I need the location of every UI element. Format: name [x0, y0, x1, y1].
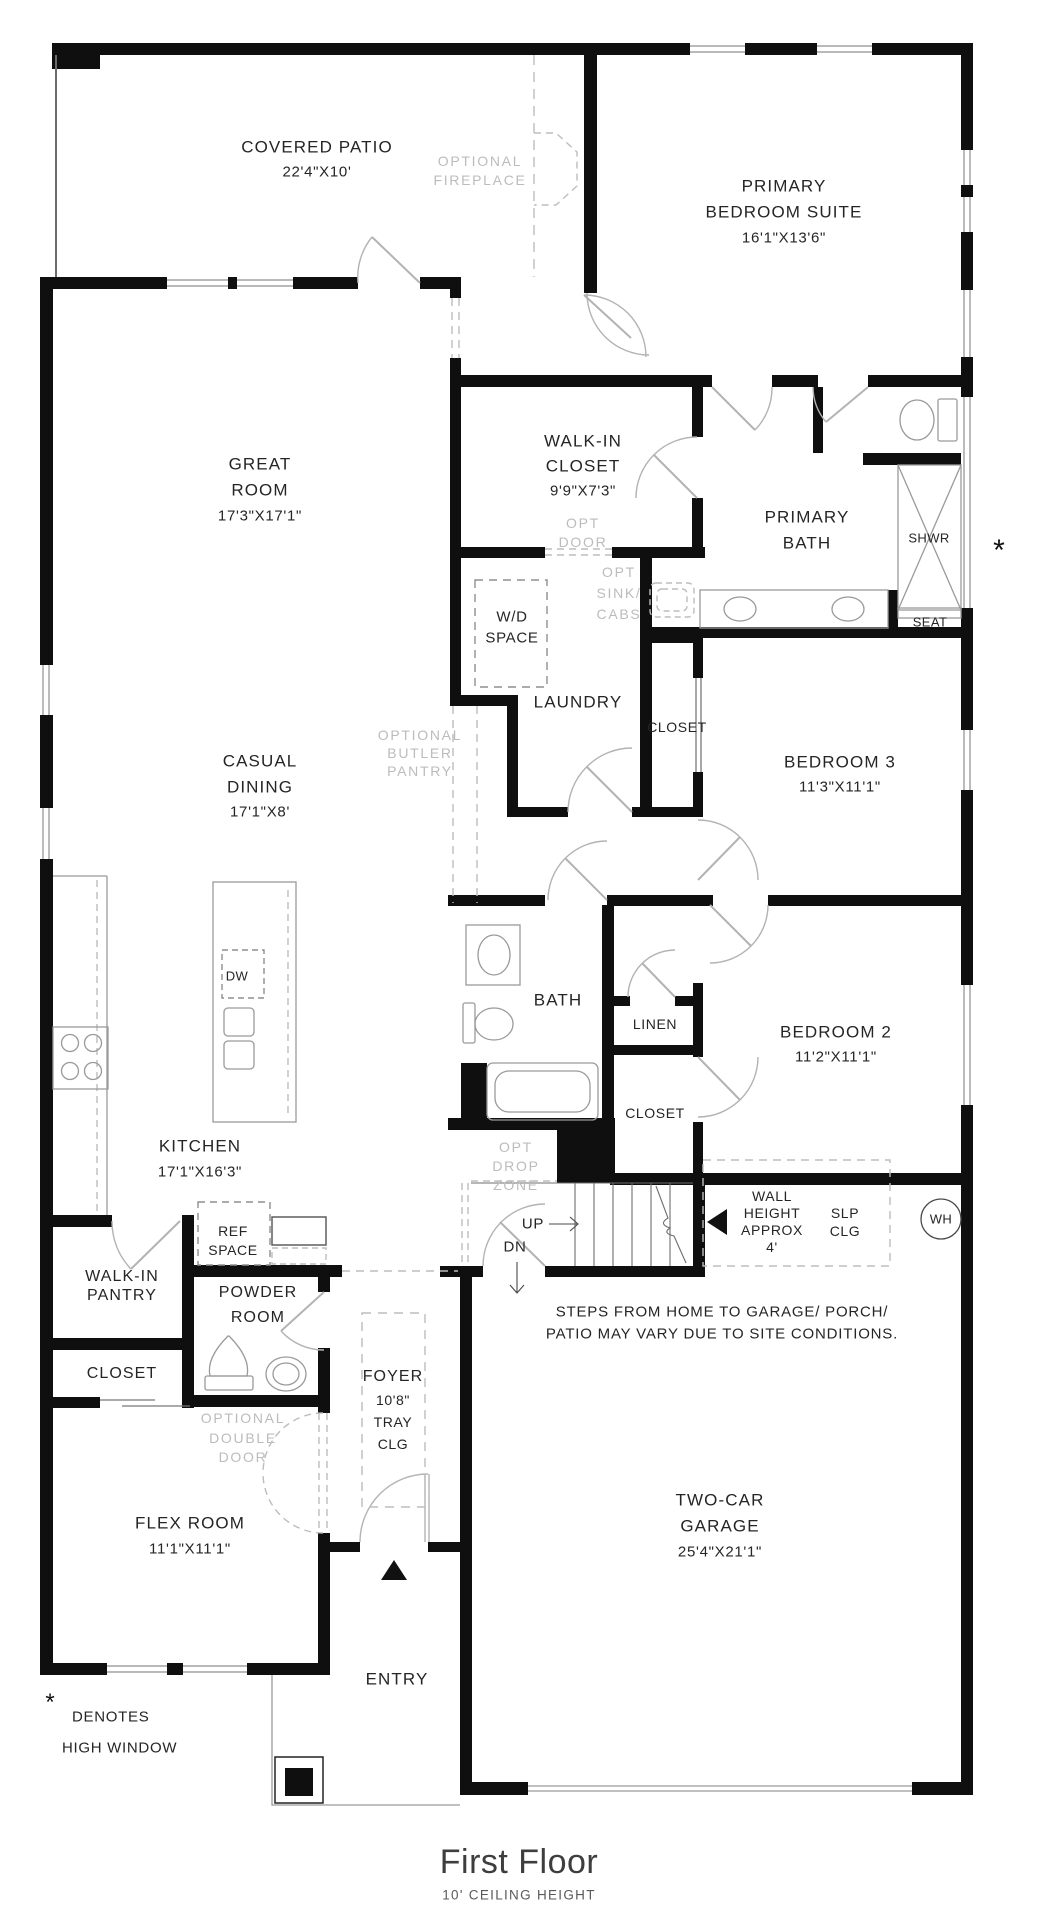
powder-room-label: POWDER	[219, 1285, 298, 1301]
laundry-door	[568, 748, 632, 812]
down-arrow	[510, 1262, 524, 1293]
steps-note: STEPS FROM HOME TO GARAGE/ PORCH/	[556, 1305, 889, 1320]
walk-in-closet-label: WALK-IN	[544, 433, 622, 450]
kitchen-appliance	[272, 1217, 326, 1245]
primary-suite-dims: 16'1"X13'6"	[742, 231, 826, 246]
up-arrow	[549, 1217, 578, 1231]
bedroom3-label: BEDROOM 3	[784, 754, 896, 771]
entry-label: ENTRY	[366, 1671, 429, 1688]
entry-direction-icon	[381, 1560, 407, 1580]
ref-space-label: REF	[218, 1224, 248, 1238]
butler-pantry-label: BUTLER	[387, 746, 452, 760]
primary-bath-door	[712, 387, 772, 430]
optional-double-door-label: DOUBLE	[209, 1431, 277, 1445]
laundry-label: LAUNDRY	[534, 694, 623, 711]
cased-opening-dashed	[452, 298, 459, 358]
garage-label: GARAGE	[680, 1518, 759, 1535]
toilet-icon	[900, 399, 957, 441]
butler-pantry-label: OPTIONAL	[378, 728, 462, 742]
windows	[43, 46, 970, 1672]
opt-sink-cabs-label: CABS	[597, 607, 642, 621]
wall-height-note: WALL	[752, 1189, 792, 1203]
high-window	[964, 397, 970, 608]
stairs-dn-label: DN	[503, 1240, 526, 1255]
stair-landing-door	[483, 1204, 545, 1266]
stair-break-line	[656, 1186, 686, 1263]
walk-in-pantry-label: PANTRY	[87, 1288, 157, 1304]
walk-in-closet-door	[636, 437, 697, 498]
porch-column	[275, 1757, 323, 1803]
window	[237, 280, 293, 286]
foyer-label: FOYER	[363, 1369, 424, 1385]
walk-in-closet-label: CLOSET	[546, 458, 621, 475]
wd-space-label: SPACE	[485, 631, 538, 646]
ref-space-label: SPACE	[208, 1243, 257, 1257]
bedroom3-door	[698, 820, 758, 880]
covered-patio-dims: 22'4"X10'	[282, 165, 351, 180]
optional-double-door-label: DOOR	[219, 1450, 268, 1464]
window	[964, 730, 970, 790]
bath-door	[548, 841, 607, 900]
closet-bed2-door	[698, 1057, 758, 1117]
floor-plan-drawing	[0, 0, 1037, 1920]
window	[183, 1666, 247, 1672]
drop-zone-label: DROP	[492, 1159, 539, 1173]
bedroom2-door	[710, 905, 768, 963]
optional-fireplace-outline	[534, 133, 577, 205]
opt-door-label: OPT	[566, 516, 600, 530]
primary-bath-label: PRIMARY	[765, 509, 850, 526]
slp-clg-note: CLG	[830, 1224, 861, 1238]
kitchen-label: KITCHEN	[159, 1138, 241, 1155]
great-room-dims: 17'3"X17'1"	[218, 509, 302, 524]
bedroom2-label: BEDROOM 2	[780, 1024, 892, 1041]
flex-room-dims: 11'1"X11'1"	[149, 1542, 231, 1557]
window	[43, 665, 49, 715]
closet-bed3-label: CLOSET	[647, 720, 707, 734]
primary-bath-label: BATH	[783, 535, 831, 552]
opt-sink-cabs-label: OPT	[602, 565, 636, 579]
high-window-marker: *	[993, 536, 1005, 566]
window	[964, 985, 970, 1105]
wall-height-pointer-icon	[707, 1209, 727, 1235]
opt-sink-cabs-label: SINK/	[596, 586, 641, 600]
covered-patio-label: COVERED PATIO	[241, 139, 393, 156]
garage-door	[528, 1786, 912, 1791]
dishwasher-label: DW	[226, 970, 248, 983]
bath-vanity	[466, 925, 520, 985]
flex-room-label: FLEX ROOM	[135, 1515, 245, 1532]
window	[690, 46, 745, 52]
double-vanity	[700, 590, 888, 628]
kitchen-dims: 17'1"X16'3"	[158, 1165, 242, 1180]
bathtub-icon	[487, 1063, 598, 1120]
garage-dims: 25'4"X21'1"	[678, 1545, 762, 1560]
page-title: First Floor	[440, 1845, 599, 1879]
walk-in-pantry-label: WALK-IN	[85, 1269, 159, 1285]
legend-text: DENOTES	[72, 1710, 149, 1725]
shower-label: SHWR	[908, 532, 949, 545]
steps-note: PATIO MAY VARY DUE TO SITE CONDITIONS.	[546, 1327, 898, 1342]
opt-sink-cabs-outline	[650, 583, 694, 617]
wd-space-label: W/D	[496, 610, 527, 625]
casual-dining-label: DINING	[227, 779, 293, 796]
pantry-door	[112, 1221, 180, 1269]
powder-room-label: ROOM	[231, 1310, 285, 1326]
door-arcs	[112, 237, 868, 1542]
window	[964, 150, 970, 185]
foyer-dims: 10'8"	[376, 1393, 410, 1407]
window	[964, 197, 970, 232]
butler-pantry-label: PANTRY	[387, 764, 453, 778]
closet-flex-label: CLOSET	[87, 1366, 158, 1382]
foyer-tray-ceiling-outline	[362, 1313, 425, 1507]
page-subtitle: 10' CEILING HEIGHT	[442, 1888, 596, 1902]
kitchen-appliance-dashed	[272, 1248, 326, 1264]
foyer-tray-label: TRAY	[374, 1415, 413, 1429]
casual-dining-label: CASUAL	[223, 753, 298, 770]
optional-fireplace-label: OPTIONAL	[438, 154, 522, 168]
water-heater-label: WH	[930, 1213, 952, 1226]
legend-asterisk: *	[45, 1691, 54, 1715]
linen-label: LINEN	[633, 1017, 677, 1031]
primary-suite-label: PRIMARY	[742, 178, 827, 195]
wall-height-note: HEIGHT	[744, 1206, 801, 1220]
optional-fireplace-label: FIREPLACE	[433, 173, 526, 187]
window	[167, 280, 228, 286]
optional-double-door-label: OPTIONAL	[201, 1411, 285, 1425]
opt-door-label: DOOR	[559, 535, 608, 549]
seat-label: SEAT	[913, 616, 948, 629]
kitchen-island	[213, 882, 296, 1122]
casual-dining-dims: 17'1"X8'	[230, 805, 290, 820]
floor-plan-page: COVERED PATIO 22'4"X10' OPTIONAL FIREPLA…	[0, 0, 1037, 1920]
front-door	[360, 1474, 429, 1542]
wall-height-note: 4'	[766, 1240, 778, 1254]
bedroom2-dims: 11'2"X11'1"	[795, 1050, 877, 1065]
legend-text: HIGH WINDOW	[62, 1741, 177, 1756]
bath-label: BATH	[534, 992, 582, 1009]
primary-suite-label: BEDROOM SUITE	[706, 204, 863, 221]
drop-zone-label: ZONE	[493, 1178, 539, 1192]
window	[817, 46, 872, 52]
bedroom3-dims: 11'3"X11'1"	[799, 780, 881, 795]
wall-height-note: APPROX	[741, 1223, 803, 1237]
drop-zone-label: OPT	[499, 1140, 533, 1154]
sliding-door	[100, 1400, 190, 1406]
slp-clg-note: SLP	[831, 1206, 859, 1220]
great-room-label: ROOM	[231, 482, 288, 499]
window	[964, 290, 970, 357]
foyer-tray-label: CLG	[378, 1437, 409, 1451]
linen-door	[628, 950, 675, 997]
closet-bed2-label: CLOSET	[625, 1106, 685, 1120]
primary-bedroom-door	[584, 293, 649, 357]
sink-icon	[266, 1357, 306, 1391]
great-room-label: GREAT	[229, 456, 292, 473]
garage-label: TWO-CAR	[676, 1492, 765, 1509]
toilet-icon	[205, 1336, 253, 1390]
toilet-icon	[463, 1003, 513, 1043]
patio-door	[358, 237, 420, 283]
window	[43, 808, 49, 859]
window	[107, 1666, 167, 1672]
stairs-up-label: UP	[522, 1217, 544, 1232]
cooktop-icon	[53, 1027, 108, 1089]
walk-in-closet-dims: 9'9"X7'3"	[550, 484, 616, 499]
tub-deck	[461, 1063, 487, 1120]
